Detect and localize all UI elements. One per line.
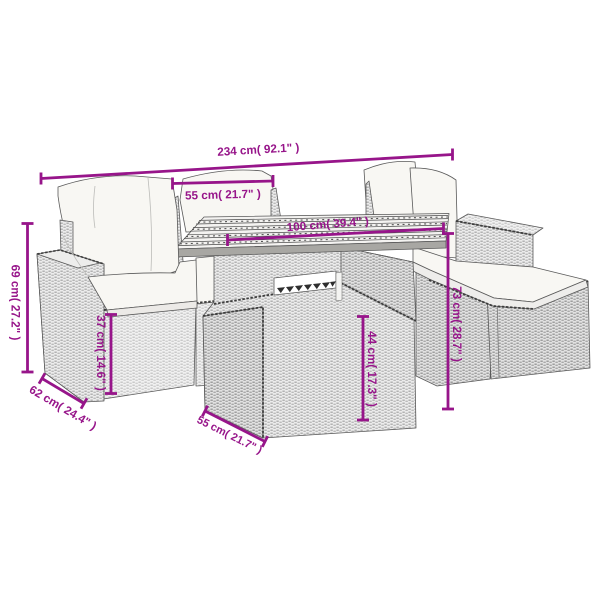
svg-text:44 cm( 17.3" ): 44 cm( 17.3" ) <box>365 331 378 407</box>
svg-text:37 cm( 14.6" ): 37 cm( 14.6" ) <box>94 315 107 391</box>
svg-text:73 cm( 28.7" ): 73 cm( 28.7" ) <box>450 286 463 362</box>
svg-text:55 cm( 21.7" ): 55 cm( 21.7" ) <box>185 188 261 203</box>
svg-text:69 cm( 27.2" ): 69 cm( 27.2" ) <box>9 265 22 341</box>
